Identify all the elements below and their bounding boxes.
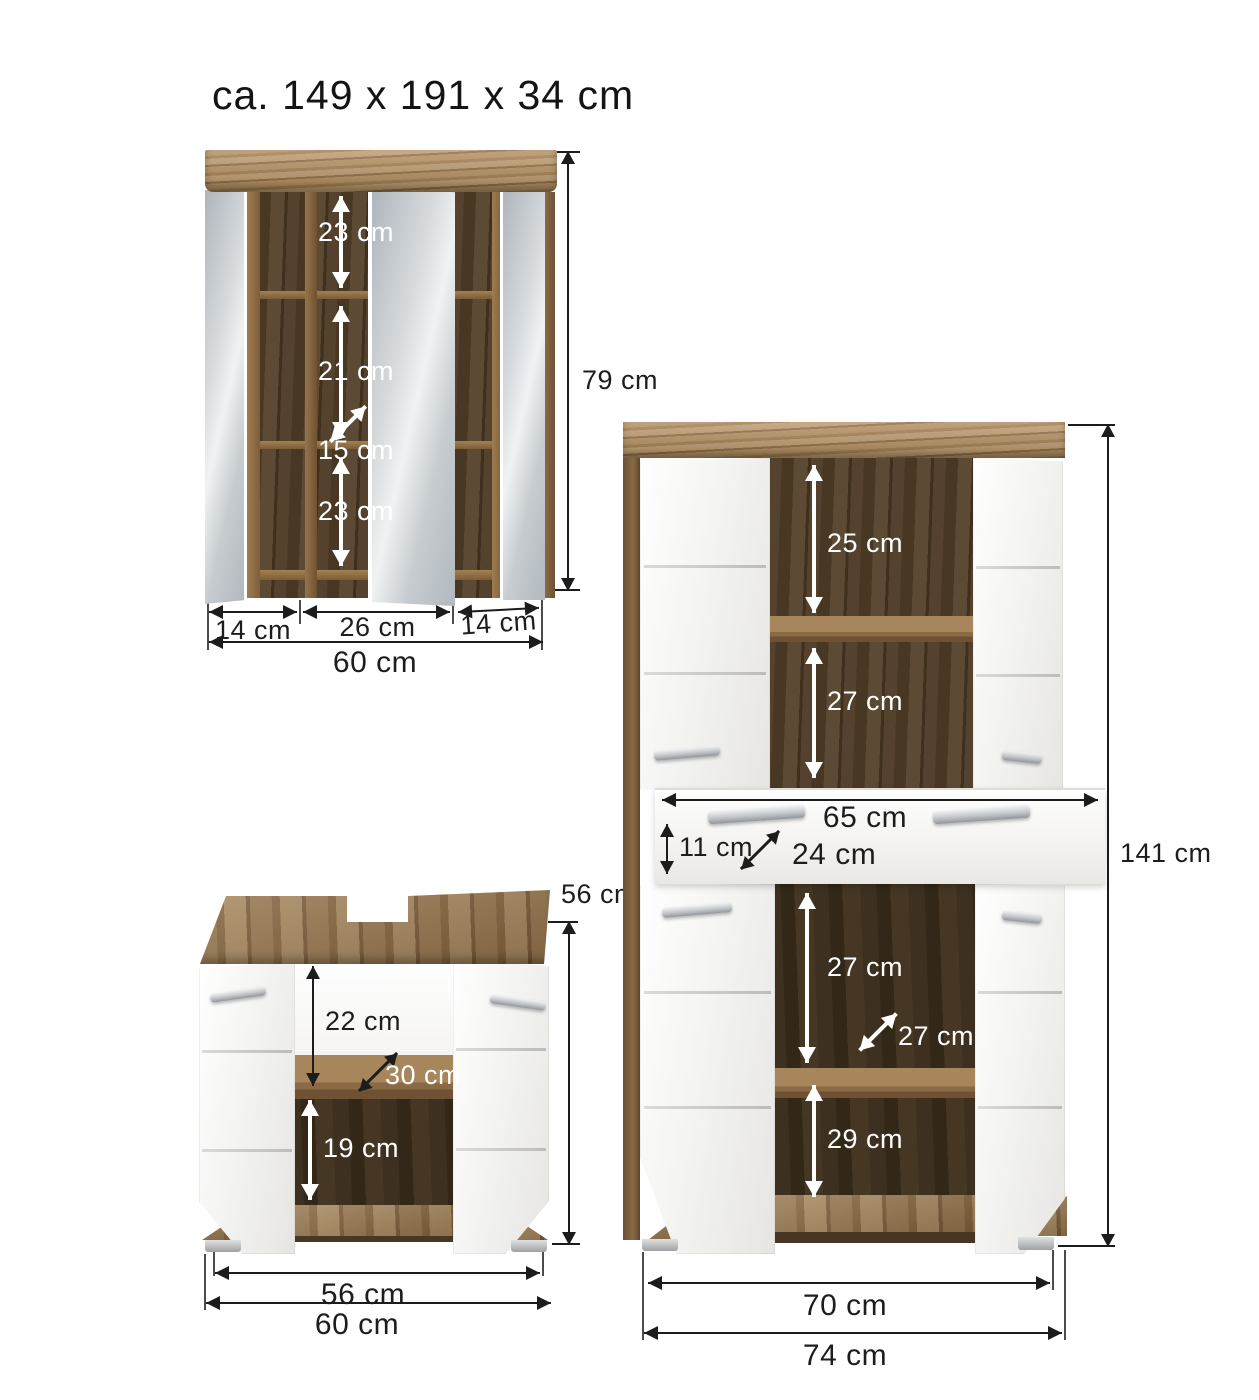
dim-line-70cm bbox=[648, 1282, 1050, 1284]
dim-label-70cm: 70 cm bbox=[770, 1291, 920, 1321]
dim-line-14cm-left bbox=[209, 611, 297, 613]
dim-label-141cm: 141 cm bbox=[1120, 840, 1212, 867]
dim-label-15cm: 15 cm bbox=[318, 437, 394, 464]
door-handle bbox=[654, 745, 721, 761]
dim-line-79cm bbox=[567, 151, 569, 591]
dim-label-74cm: 74 cm bbox=[770, 1341, 920, 1371]
dim-connector bbox=[1058, 1245, 1115, 1247]
dim-label-65cm: 65 cm bbox=[790, 803, 940, 833]
tall-cabinet-side-panel bbox=[623, 422, 640, 1240]
dim-label-22cm: 22 cm bbox=[325, 1008, 401, 1035]
dim-label-21cm: 21 cm bbox=[318, 358, 394, 385]
dim-arrow-22cm bbox=[312, 966, 314, 1086]
door-groove bbox=[976, 566, 1061, 569]
door-groove bbox=[644, 1106, 771, 1109]
vanity-door-left bbox=[199, 962, 295, 1254]
tall-cabinet-upper-door-right bbox=[973, 458, 1063, 796]
dim-arrow-27cm-upper bbox=[812, 648, 816, 778]
tall-cabinet-plinth bbox=[775, 1195, 975, 1232]
dim-tick bbox=[1064, 1250, 1066, 1340]
dim-label-23cm-bottom: 23 cm bbox=[318, 498, 394, 525]
tall-cabinet-lower-door-left bbox=[640, 884, 775, 1254]
dim-tick bbox=[299, 600, 301, 624]
mirror-door-left bbox=[205, 190, 247, 604]
dim-line-74cm bbox=[644, 1332, 1062, 1334]
door-handle bbox=[210, 986, 267, 1003]
door-groove bbox=[976, 674, 1061, 677]
mirror-door-center bbox=[368, 190, 455, 606]
furniture-dimension-diagram: ca. 149 x 191 x 34 cm 23 cm 21 cm 15 cm … bbox=[0, 0, 1259, 1400]
vanity-foot-left bbox=[205, 1240, 241, 1252]
mirror-cabinet-side-panel bbox=[545, 192, 555, 598]
door-handle bbox=[1002, 910, 1043, 924]
dim-line-60cm-width bbox=[206, 1302, 551, 1304]
dim-label-26cm: 26 cm bbox=[310, 614, 445, 641]
dim-tick bbox=[542, 1252, 544, 1276]
dim-arrow-19cm bbox=[308, 1100, 312, 1200]
vanity-door-right bbox=[453, 960, 549, 1254]
door-groove bbox=[456, 1048, 546, 1051]
door-groove bbox=[978, 1106, 1063, 1109]
dim-label-27cm-lower: 27 cm bbox=[827, 954, 903, 981]
door-groove bbox=[644, 565, 766, 568]
dim-arrow-25cm bbox=[812, 465, 816, 613]
dim-line-56cm-height bbox=[568, 921, 570, 1245]
door-groove bbox=[978, 991, 1063, 994]
dim-label-25cm: 25 cm bbox=[827, 530, 903, 557]
tall-cabinet-plinth-edge bbox=[775, 1232, 975, 1243]
mirror-cabinet-divider bbox=[305, 192, 317, 598]
dim-line-141cm bbox=[1107, 424, 1109, 1247]
dim-connector bbox=[552, 1243, 580, 1245]
drawer-handle-right bbox=[933, 805, 1031, 825]
vanity-bottom-board bbox=[288, 1205, 458, 1238]
tall-cabinet-upper-shelf bbox=[770, 616, 975, 642]
door-groove bbox=[202, 1050, 292, 1053]
vanity-foot-right bbox=[511, 1240, 547, 1252]
door-groove bbox=[456, 1148, 546, 1151]
door-handle bbox=[490, 994, 547, 1011]
dim-label-30cm: 30 cm bbox=[385, 1062, 461, 1089]
dim-label-27cm-upper: 27 cm bbox=[827, 688, 903, 715]
vanity-bottom-edge bbox=[288, 1236, 458, 1242]
dim-line-56cm-width bbox=[215, 1272, 540, 1274]
dim-label-23cm-top: 23 cm bbox=[318, 219, 394, 246]
mirror-door-right bbox=[500, 190, 545, 600]
dim-tick bbox=[1052, 1250, 1054, 1290]
dim-label-29cm: 29 cm bbox=[827, 1126, 903, 1153]
vanity-top-board bbox=[196, 890, 552, 964]
dim-label-56cm-width: 56 cm bbox=[288, 1280, 438, 1310]
tall-cabinet-lower-door-right bbox=[975, 884, 1065, 1254]
dim-label-11cm: 11 cm bbox=[679, 834, 753, 861]
tall-cabinet-top-board bbox=[623, 422, 1065, 458]
mirror-cabinet-top-board bbox=[205, 150, 557, 192]
tall-cabinet-foot-left bbox=[642, 1239, 678, 1251]
door-groove bbox=[644, 991, 771, 994]
dim-label-79cm: 79 cm bbox=[582, 367, 658, 394]
dim-arrow-29cm bbox=[812, 1085, 816, 1197]
tall-cabinet-upper-door-left bbox=[640, 458, 770, 793]
dim-arrow-11cm bbox=[666, 824, 668, 874]
door-groove bbox=[202, 1149, 292, 1152]
dim-label-24cm: 24 cm bbox=[792, 840, 876, 870]
page-title: ca. 149 x 191 x 34 cm bbox=[212, 72, 634, 119]
dim-label-60cm-width: 60 cm bbox=[282, 1310, 432, 1340]
dim-label-19cm: 19 cm bbox=[323, 1135, 399, 1162]
dim-line-60cm bbox=[209, 641, 543, 643]
door-handle bbox=[1002, 750, 1043, 764]
mirror-cabinet-frame-post bbox=[247, 192, 260, 598]
door-handle bbox=[662, 902, 733, 918]
dim-arrow-27cm-lower bbox=[805, 893, 809, 1063]
dim-label-60cm: 60 cm bbox=[300, 648, 450, 678]
tall-cabinet-foot-right bbox=[1018, 1237, 1054, 1250]
door-groove bbox=[644, 672, 766, 675]
dim-label-27cm-depth: 27 cm bbox=[898, 1023, 974, 1050]
